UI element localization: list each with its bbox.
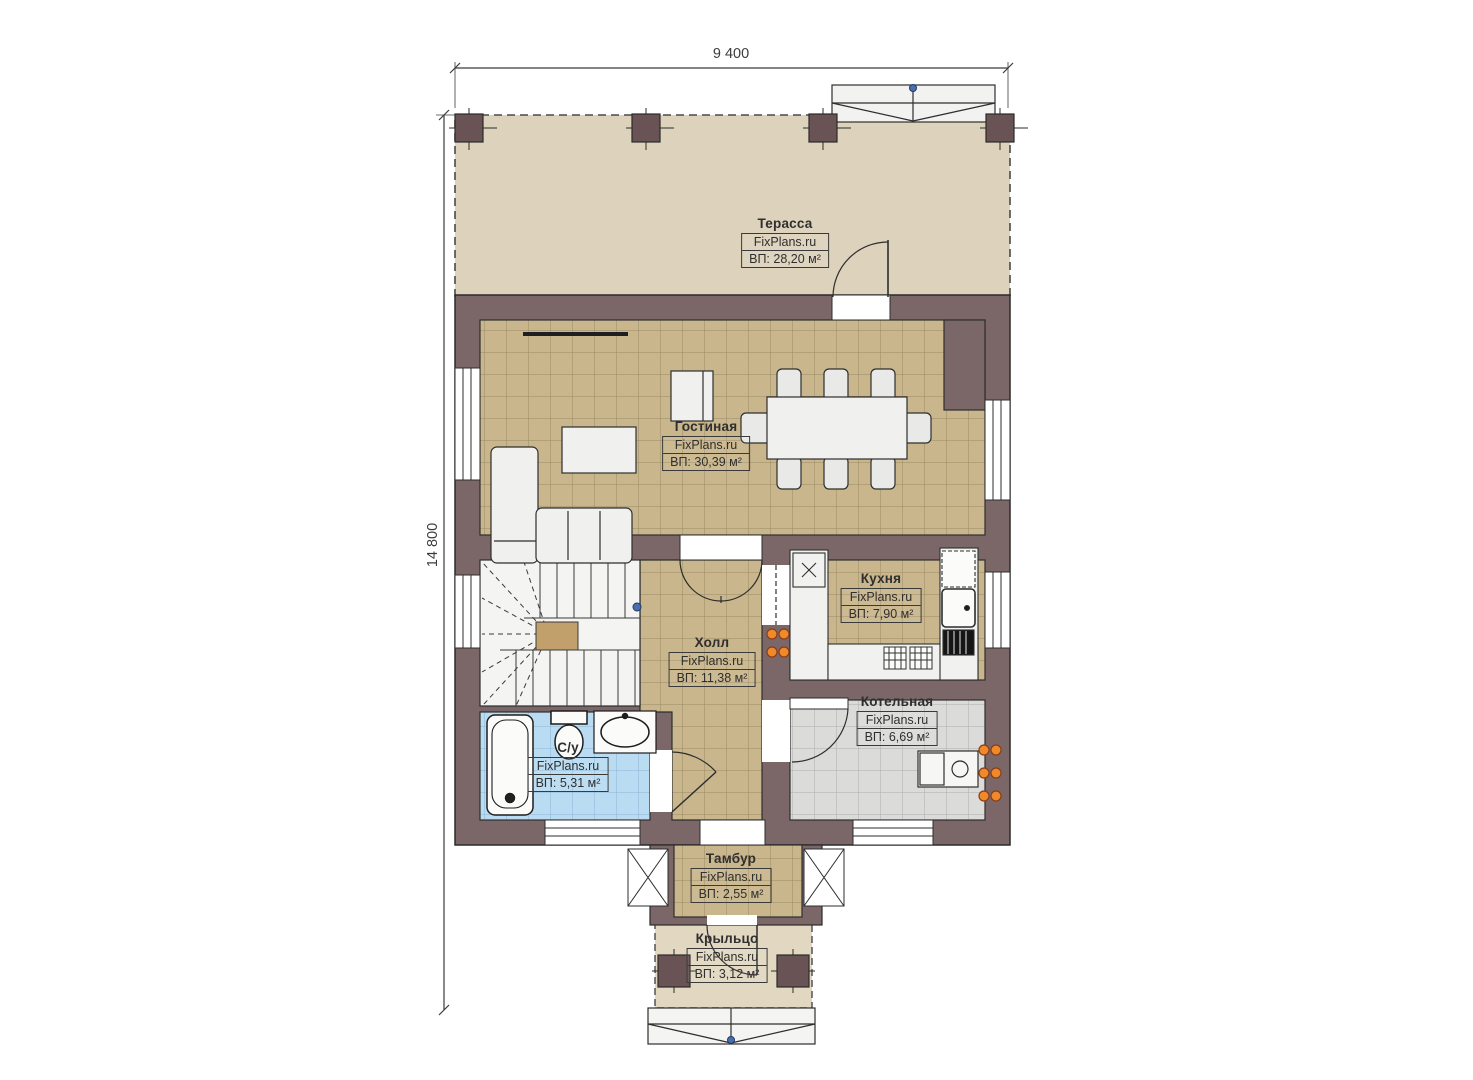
room-name: Гостиная: [662, 419, 750, 434]
brand-row: FixPlans.ru: [688, 949, 767, 966]
area-row: ВП: 2,55 м²: [692, 886, 771, 902]
area-row: ВП: 7,90 м²: [842, 606, 921, 622]
bathtub: [487, 715, 533, 815]
window-right-kitchen: [985, 572, 1010, 648]
area-row: ВП: 5,31 м²: [529, 775, 608, 791]
area-row: ВП: 28,20 м²: [742, 251, 828, 267]
room-label-living: Гостиная FixPlans.ru ВП: 30,39 м²: [662, 419, 750, 471]
terrace: [449, 85, 1028, 298]
dimension-left-label: 14 800: [425, 523, 441, 567]
floor-plan-page: 9 400 14 800 Терасса FixPlans.ru ВП: 28,…: [0, 0, 1473, 1080]
window-left-living: [455, 368, 480, 480]
room-info-box: FixPlans.ru ВП: 7,90 м²: [841, 588, 922, 623]
room-name: Терасса: [741, 216, 829, 231]
corner-wall-block: [944, 320, 985, 410]
dimension-top-label: 9 400: [713, 46, 749, 62]
terrace-steps: [832, 85, 995, 123]
room-info-box: FixPlans.ru ВП: 3,12 м²: [687, 948, 768, 983]
opening-hall-vestibule: [700, 820, 765, 845]
room-label-boiler: Котельная FixPlans.ru ВП: 6,69 м²: [857, 694, 938, 746]
window-bottom-bath: [545, 820, 640, 845]
room-name: Холл: [669, 635, 756, 650]
room-label-bathroom: С/у FixPlans.ru ВП: 5,31 м²: [528, 740, 609, 792]
brand-row: FixPlans.ru: [858, 712, 937, 729]
room-info-box: FixPlans.ru ВП: 5,31 м²: [528, 757, 609, 792]
room-name: С/у: [528, 740, 609, 755]
area-row: ВП: 6,69 м²: [858, 729, 937, 745]
room-label-hall: Холл FixPlans.ru ВП: 11,38 м²: [669, 635, 756, 687]
kitchen-sink: [942, 589, 975, 655]
window-bottom-boiler: [853, 820, 933, 845]
brand-row: FixPlans.ru: [842, 589, 921, 606]
coffee-table: [562, 427, 636, 473]
room-label-kitchen: Кухня FixPlans.ru ВП: 7,90 м²: [841, 571, 922, 623]
window-left-stairs: [455, 575, 480, 648]
room-info-box: FixPlans.ru ВП: 11,38 м²: [669, 652, 756, 687]
room-info-box: FixPlans.ru ВП: 6,69 м²: [857, 711, 938, 746]
room-info-box: FixPlans.ru ВП: 28,20 м²: [741, 233, 829, 268]
room-info-box: FixPlans.ru ВП: 2,55 м²: [691, 868, 772, 903]
opening-vestibule-porch: [707, 915, 757, 925]
tv-cabinet: [671, 371, 713, 421]
area-row: ВП: 30,39 м²: [663, 454, 749, 470]
room-info-box: FixPlans.ru ВП: 30,39 м²: [662, 436, 750, 471]
dishwasher: [793, 553, 825, 587]
room-name: Тамбур: [691, 851, 772, 866]
room-label-porch: Крыльцо FixPlans.ru ВП: 3,12 м²: [687, 931, 768, 983]
brand-row: FixPlans.ru: [692, 869, 771, 886]
dining-table: [767, 397, 907, 459]
boiler-fixtures: [918, 751, 978, 787]
room-label-vestibule: Тамбур FixPlans.ru ВП: 2,55 м²: [691, 851, 772, 903]
brand-row: FixPlans.ru: [529, 758, 608, 775]
floor-plan-drawing: [0, 0, 1473, 1080]
brand-row: FixPlans.ru: [663, 437, 749, 454]
opening-kitchen: [762, 565, 790, 625]
area-row: ВП: 11,38 м²: [670, 670, 755, 686]
room-name: Котельная: [857, 694, 938, 709]
area-row: ВП: 3,12 м²: [688, 966, 767, 982]
fridge: [942, 551, 975, 587]
brand-row: FixPlans.ru: [670, 653, 755, 670]
brand-row: FixPlans.ru: [742, 234, 828, 251]
room-name: Кухня: [841, 571, 922, 586]
room-name: Крыльцо: [687, 931, 768, 946]
room-label-terrace: Терасса FixPlans.ru ВП: 28,20 м²: [741, 216, 829, 268]
porch-steps: [648, 1008, 815, 1044]
window-right-living: [985, 400, 1010, 500]
